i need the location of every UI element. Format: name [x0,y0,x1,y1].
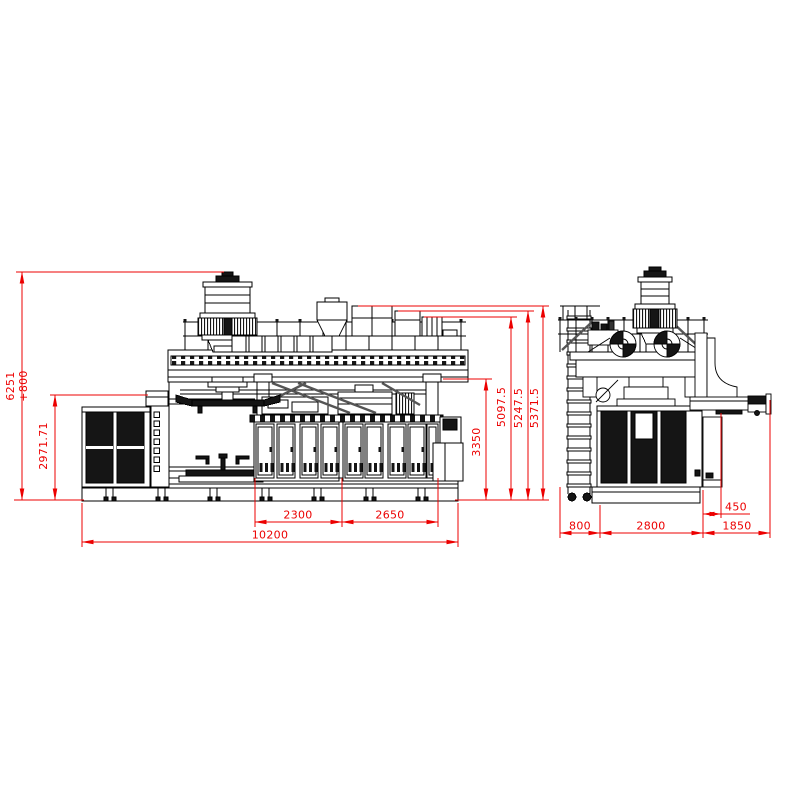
dim-overall-height-offset: +800 [17,370,30,401]
dim-guardrail-height: 5371.5 [528,388,541,428]
drawing-canvas: 6251 +800 2971.71 3350 5097.5 5247.5 537… [0,0,800,800]
deck-platform [168,350,468,377]
dim-mold-bay-width: 2300 [283,509,312,522]
clamp-cabinets [250,415,443,481]
dim-conveyor-overhang: 1850 [722,520,751,533]
dim-enclosure-height: 3350 [470,427,483,456]
dim-platform-height: 5097.5 [495,387,508,427]
dim-ladder-depth: 800 [569,520,591,533]
end-cabinet [592,406,702,503]
left-cabinet [82,407,150,487]
dim-conveyor-side-offset: 450 [725,501,747,514]
dim-clamp-bay-width: 2650 [375,509,404,522]
dim-body-depth: 2800 [636,520,665,533]
dim-hopper-height: 5247.5 [512,388,525,428]
dim-overall-height: 6251 [4,371,17,400]
dim-front-section-height: 2971.71 [37,422,50,470]
extruder-barrel [232,336,332,352]
dim-overall-length: 10200 [252,529,289,542]
technical-drawing: 6251 +800 2971.71 3350 5097.5 5247.5 537… [0,0,800,800]
end-deck [570,352,710,377]
